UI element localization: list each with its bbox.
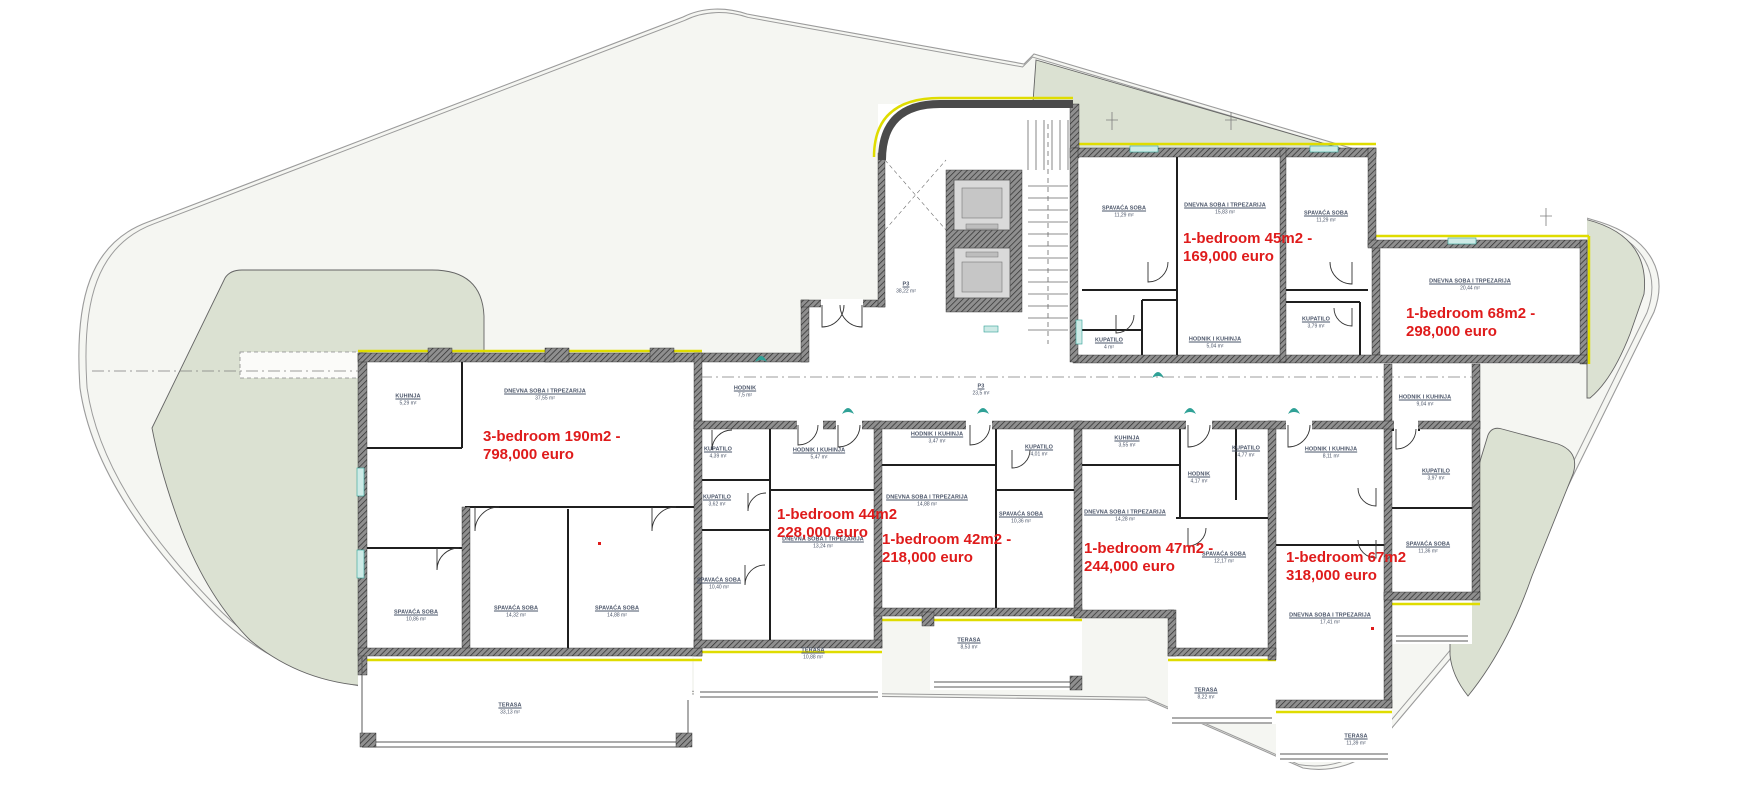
floor-plan-drawing <box>0 0 1737 800</box>
partition-hatched <box>462 507 470 652</box>
partition-hatched <box>1372 247 1380 355</box>
canopy-dashed-outline <box>240 352 362 378</box>
floor-plan-canvas: KUHINJA5,29 m²DNEVNA SOBA I TRPEZARIJA37… <box>0 0 1737 800</box>
elevator-shaft <box>946 170 1022 312</box>
